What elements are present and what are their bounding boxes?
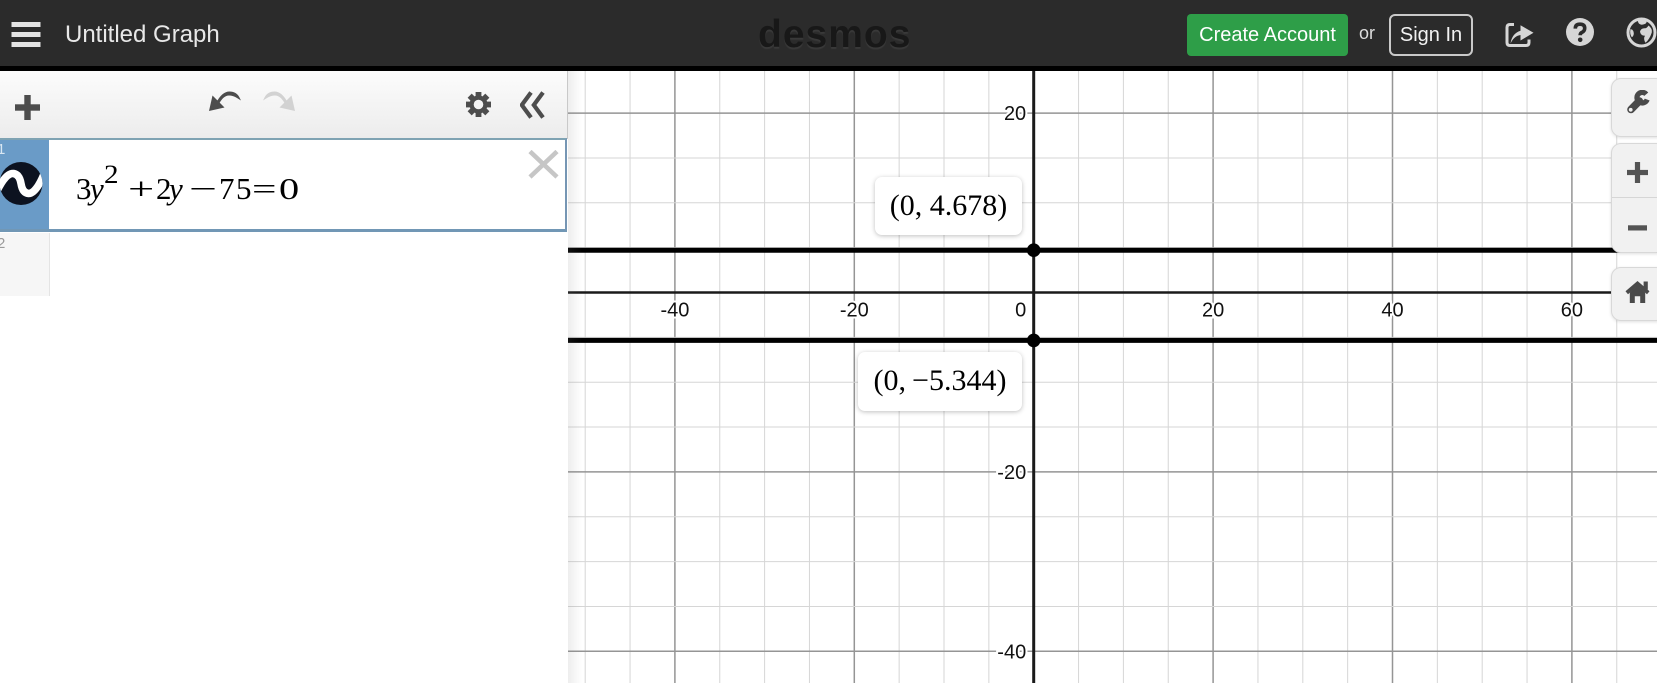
svg-text:20: 20 — [1202, 300, 1224, 322]
svg-text:20: 20 — [1004, 103, 1026, 125]
svg-text:-20: -20 — [840, 300, 869, 322]
svg-text:60: 60 — [1561, 300, 1583, 322]
svg-text:-20: -20 — [997, 462, 1026, 484]
svg-text:40: 40 — [1381, 300, 1403, 322]
svg-text:-40: -40 — [660, 300, 689, 322]
svg-text:0: 0 — [1015, 300, 1026, 322]
svg-text:-40: -40 — [997, 641, 1026, 663]
